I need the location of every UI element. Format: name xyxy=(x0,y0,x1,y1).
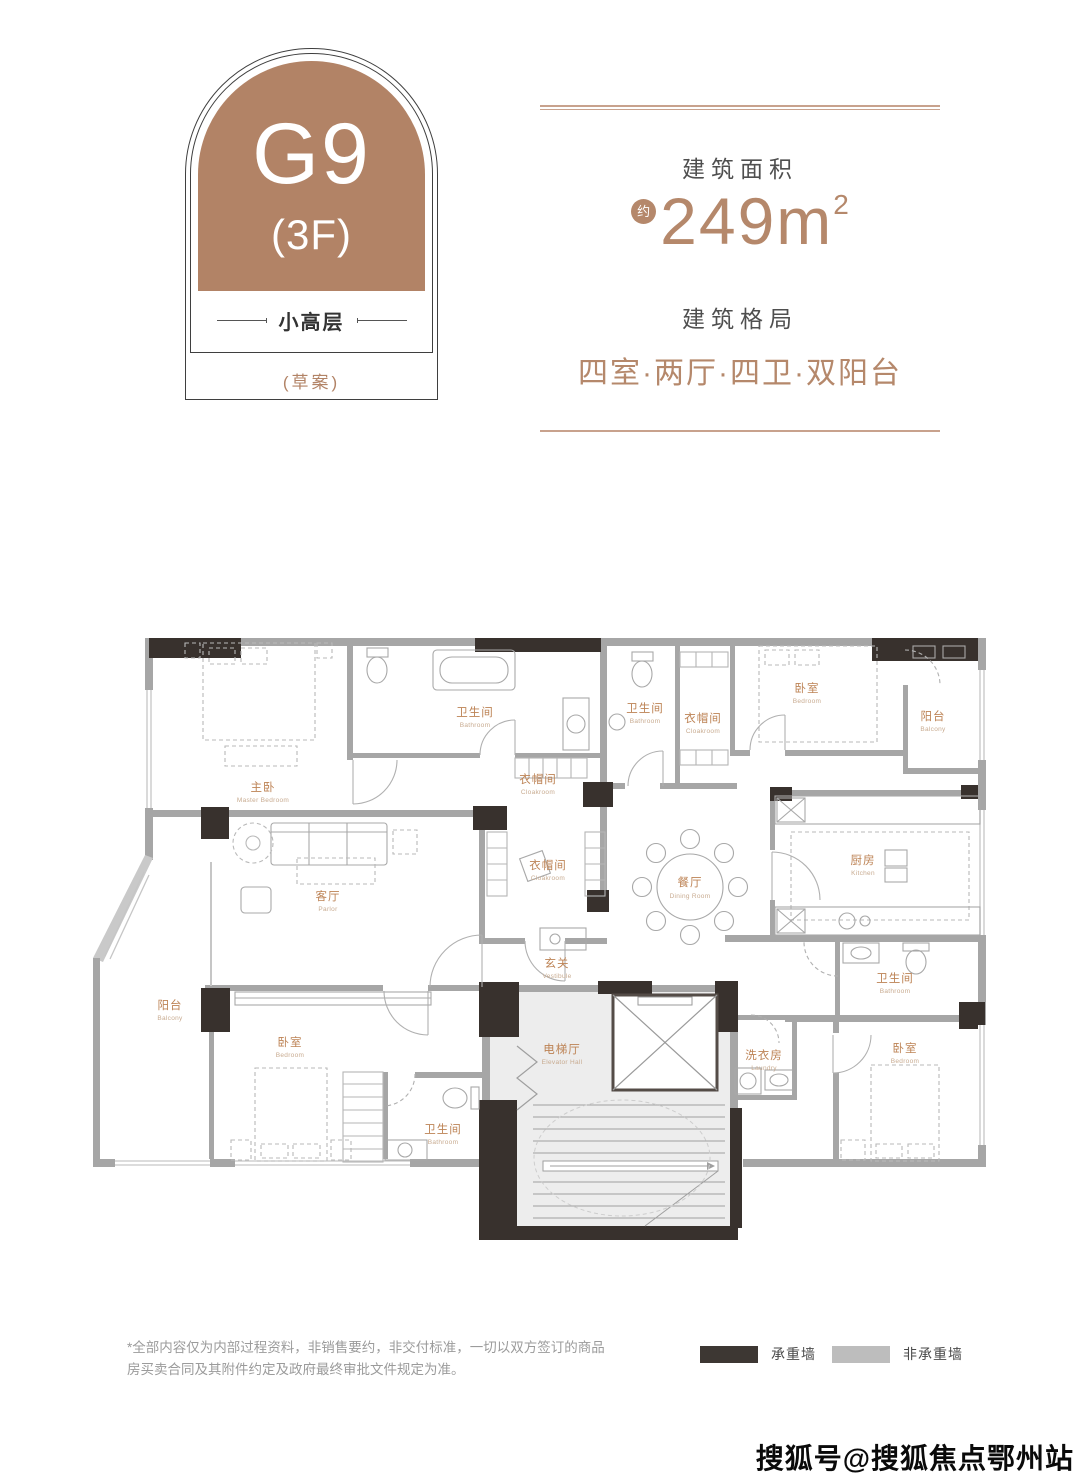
room-sublabel: Balcony xyxy=(920,726,946,733)
legend-load-bearing: 承重墙 xyxy=(700,1344,816,1364)
sink-icon xyxy=(765,1070,793,1090)
decorative-line-right xyxy=(357,320,407,321)
sink-icon xyxy=(609,714,625,730)
room-sublabel: Bedroom xyxy=(793,698,821,705)
approx-circle-badge: 约 xyxy=(631,199,656,224)
room-sublabel: Master Bedroom xyxy=(237,797,289,804)
floor-plan: 主卧 Master Bedroom 卫生间 Bathroom 衣帽间 Cloak… xyxy=(85,610,1015,1270)
bed xyxy=(841,1065,939,1161)
room-label: 卧室 xyxy=(893,1041,918,1055)
toilet-icon xyxy=(443,1087,479,1109)
room-label: 阳台 xyxy=(158,998,183,1012)
bathtub xyxy=(433,650,515,690)
area-unit: m xyxy=(776,184,833,258)
room-sublabel: Elevator Hall xyxy=(542,1059,583,1066)
load-bearing-swatch xyxy=(700,1346,758,1363)
room-sublabel: Parlor xyxy=(318,906,338,913)
room-sublabel: Cloakroom xyxy=(531,875,565,882)
room-label: 餐厅 xyxy=(678,875,703,889)
layout-label: 建筑格局 xyxy=(540,300,940,334)
unit-info: 建筑面积 约249m2 建筑格局 四室·两厅·四卫·双阳台 xyxy=(540,105,940,432)
room-sublabel: Bathroom xyxy=(880,988,911,995)
room-sublabel: Bedroom xyxy=(891,1058,919,1065)
room-label: 衣帽间 xyxy=(519,772,557,786)
legend-non-load-bearing: 非承重墙 xyxy=(832,1344,963,1364)
room-sublabel: Laundry xyxy=(751,1065,777,1072)
non-load-bearing-label: 非承重墙 xyxy=(903,1344,963,1364)
flyer-page: G9 (3F) 小高层 (草案) 建筑面积 约249m2 建筑格局 四室·两厅·… xyxy=(0,0,1080,1482)
bed xyxy=(231,1068,351,1161)
double-rule xyxy=(540,105,940,110)
room-sublabel: Bathroom xyxy=(630,718,661,725)
load-bearing-label: 承重墙 xyxy=(771,1344,816,1364)
vanity-sink xyxy=(563,698,589,750)
room-label: 卧室 xyxy=(795,681,820,695)
room-label: 卫生间 xyxy=(626,701,664,715)
master-bed xyxy=(185,643,332,766)
room-label: 卫生间 xyxy=(424,1122,462,1136)
room-label: 卫生间 xyxy=(876,971,914,985)
toilet-icon xyxy=(367,648,388,683)
building-type: 小高层 xyxy=(279,306,345,335)
side-table xyxy=(393,830,417,854)
room-label: 电梯厅 xyxy=(543,1043,581,1056)
room-sublabel: Balcony xyxy=(157,1015,183,1022)
room-sublabel: Bathroom xyxy=(460,722,491,729)
room-sublabel: Bedroom xyxy=(276,1052,304,1059)
room-sublabel: Bathroom xyxy=(428,1139,459,1146)
layout-value: 四室·两厅·四卫·双阳台 xyxy=(540,348,940,392)
non-load-bearing-swatch xyxy=(832,1346,890,1363)
badge-brown-arch: G9 (3F) xyxy=(198,61,425,291)
room-label: 阳台 xyxy=(921,709,946,723)
rug xyxy=(233,823,273,863)
cloakroom-racks xyxy=(680,652,728,765)
decorative-line-left xyxy=(217,320,267,321)
area-label: 建筑面积 xyxy=(540,150,940,184)
room-label: 客厅 xyxy=(316,889,341,903)
sink-icon xyxy=(843,943,879,963)
area-value-row: 约249m2 xyxy=(540,188,940,254)
draft-note: (草案) xyxy=(185,368,438,393)
area-digits: 249 xyxy=(660,184,776,258)
armchair xyxy=(241,887,271,913)
room-label: 衣帽间 xyxy=(529,858,567,872)
watermark: 搜狐号@搜狐焦点鄂州站 xyxy=(756,1437,1074,1477)
floor-plan-drawing: 主卧 Master Bedroom 卫生间 Bathroom 衣帽间 Cloak… xyxy=(85,610,1015,1270)
unit-badge: G9 (3F) 小高层 (草案) xyxy=(185,48,438,400)
room-label: 厨房 xyxy=(851,854,876,867)
area-number: 249m xyxy=(660,184,833,258)
room-sublabel: Dining Room xyxy=(670,893,711,900)
room-label: 衣帽间 xyxy=(684,711,722,725)
room-sublabel: Cloakroom xyxy=(521,789,555,796)
disclaimer-text: *全部内容仅为内部过程资料，非销售要约，非交付标准，一切以双方签订的商品房买卖合… xyxy=(127,1337,614,1382)
wardrobe xyxy=(343,1072,383,1162)
toilet-icon xyxy=(903,943,929,974)
room-sublabel: Kitchen xyxy=(851,870,875,877)
room-sublabel: Cloakroom xyxy=(686,728,720,735)
unit-floor: (3F) xyxy=(271,211,352,259)
elevator-shaft xyxy=(613,995,717,1090)
room-label: 卫生间 xyxy=(456,705,494,719)
room-label: 洗衣房 xyxy=(745,1048,783,1062)
room-label: 玄关 xyxy=(545,956,570,970)
building-type-row: 小高层 xyxy=(185,306,438,335)
room-sublabel: Vestibule xyxy=(542,973,571,980)
toilet-icon xyxy=(632,652,653,687)
unit-number: G9 xyxy=(252,111,371,197)
room-label: 卧室 xyxy=(278,1035,303,1049)
single-rule xyxy=(540,430,940,432)
sink-icon xyxy=(385,1140,427,1160)
area-superscript: 2 xyxy=(833,189,849,220)
sofa xyxy=(271,823,387,865)
room-label: 主卧 xyxy=(251,781,276,794)
tv-cabinet xyxy=(235,992,431,1005)
